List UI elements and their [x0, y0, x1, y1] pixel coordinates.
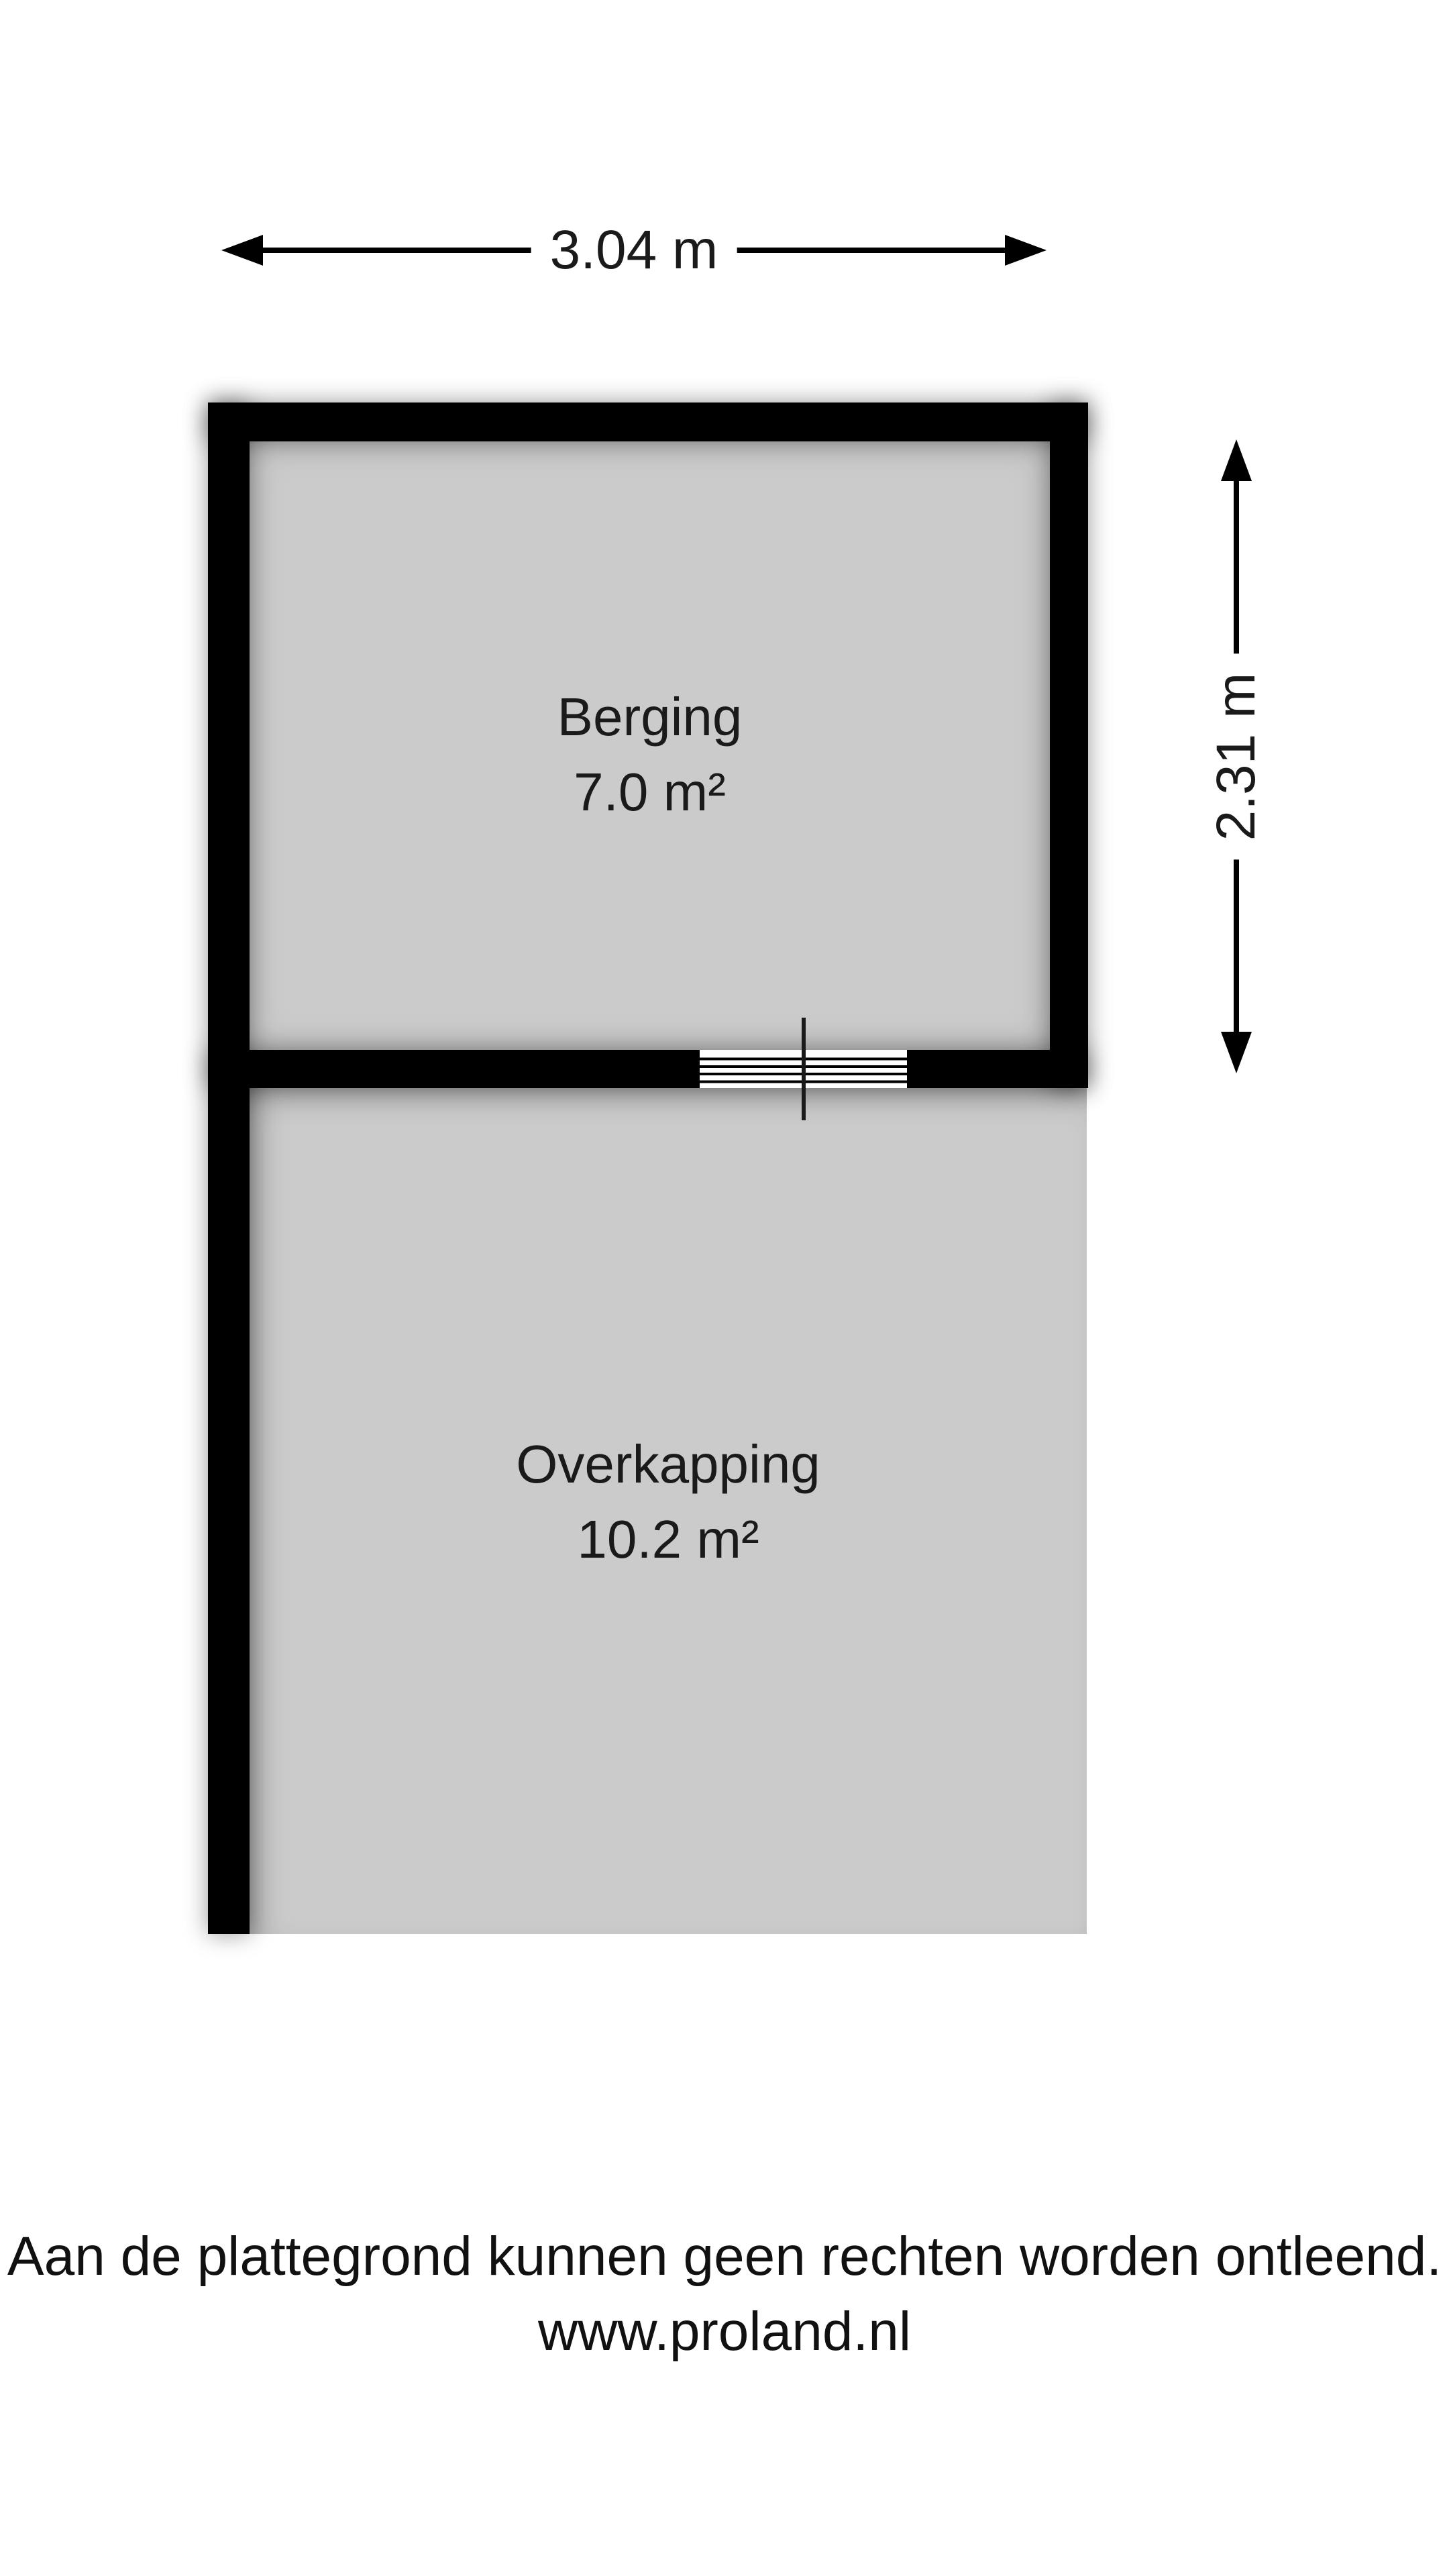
- dimension-height: 2.31 m: [1206, 439, 1267, 1073]
- dimension-width: 3.04 m: [221, 220, 1046, 280]
- room-name: Berging: [250, 680, 1050, 755]
- arrowhead-down-icon: [1221, 1032, 1252, 1073]
- room-overkapping: Overkapping 10.2 m²: [250, 1088, 1087, 1934]
- wall-right: [1050, 402, 1088, 1088]
- wall-left: [208, 402, 250, 1934]
- arrowhead-right-icon: [1005, 235, 1046, 266]
- window-center-line-icon: [802, 1018, 806, 1120]
- room-overkapping-label: Overkapping 10.2 m²: [250, 1427, 1087, 1577]
- room-berging: Berging 7.0 m²: [250, 441, 1050, 1050]
- wall-top: [208, 402, 1088, 441]
- footer-website: www.proland.nl: [0, 2294, 1449, 2369]
- dimension-width-label: 3.04 m: [531, 215, 737, 286]
- wall-divider: [208, 1050, 1088, 1088]
- room-name: Overkapping: [250, 1427, 1087, 1502]
- room-area: 7.0 m²: [250, 755, 1050, 830]
- room-berging-label: Berging 7.0 m²: [250, 680, 1050, 830]
- footer-disclaimer: Aan de plattegrond kunnen geen rechten w…: [0, 2219, 1449, 2294]
- room-area: 10.2 m²: [250, 1502, 1087, 1577]
- footer: Aan de plattegrond kunnen geen rechten w…: [0, 2219, 1449, 2369]
- dimension-height-label: 2.31 m: [1201, 653, 1272, 859]
